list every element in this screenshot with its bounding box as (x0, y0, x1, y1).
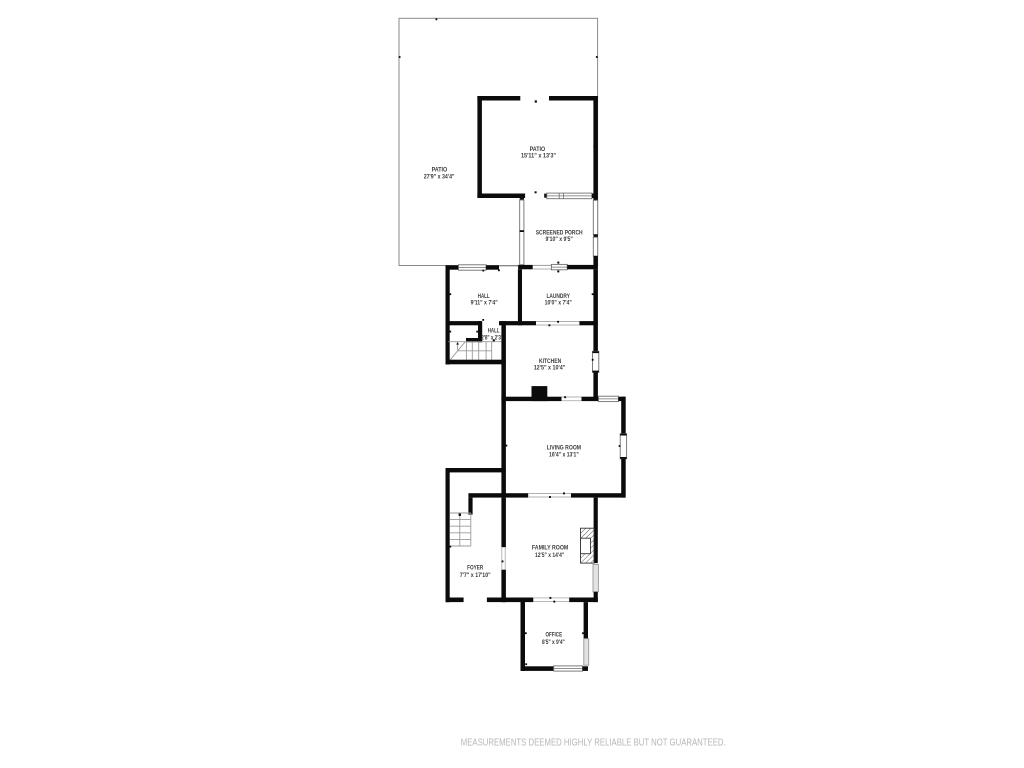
svg-text:KITCHEN: KITCHEN (539, 358, 561, 365)
svg-text:MEASUREMENTS DEEMED HIGHLY REL: MEASUREMENTS DEEMED HIGHLY RELIABLE BUT … (461, 737, 726, 749)
svg-text:12'5" x 14'4": 12'5" x 14'4" (535, 553, 564, 559)
svg-text:27'9" x 34'4": 27'9" x 34'4" (424, 174, 455, 180)
svg-text:12'5" x 10'4": 12'5" x 10'4" (534, 366, 566, 372)
svg-text:9'10" x 9'5": 9'10" x 9'5" (546, 237, 573, 243)
svg-text:7'7" x 17'10": 7'7" x 17'10" (460, 573, 491, 579)
svg-text:FAMILY ROOM: FAMILY ROOM (532, 545, 568, 552)
svg-text:LIVING ROOM: LIVING ROOM (547, 445, 581, 452)
svg-text:PATIO: PATIO (432, 166, 448, 173)
svg-text:10'0" x 7'4": 10'0" x 7'4" (545, 301, 572, 307)
svg-text:HALL: HALL (478, 293, 490, 300)
svg-text:16'4" x 13'1": 16'4" x 13'1" (549, 452, 579, 458)
svg-text:FOYER: FOYER (467, 565, 483, 572)
svg-text:PATIO: PATIO (530, 146, 546, 153)
svg-text:9'11" x 7'4": 9'11" x 7'4" (471, 301, 498, 307)
svg-text:8'5" x 9'4": 8'5" x 9'4" (542, 640, 565, 646)
svg-text:SCREENED PORCH: SCREENED PORCH (536, 229, 583, 236)
svg-text:15'11" x 13'3": 15'11" x 13'3" (521, 153, 556, 159)
svg-text:OFFICE: OFFICE (545, 631, 562, 638)
svg-text:2'8" x 2'3": 2'8" x 2'3" (481, 335, 503, 341)
svg-text:LAUNDRY: LAUNDRY (546, 293, 570, 300)
svg-text:HALL: HALL (488, 327, 500, 334)
